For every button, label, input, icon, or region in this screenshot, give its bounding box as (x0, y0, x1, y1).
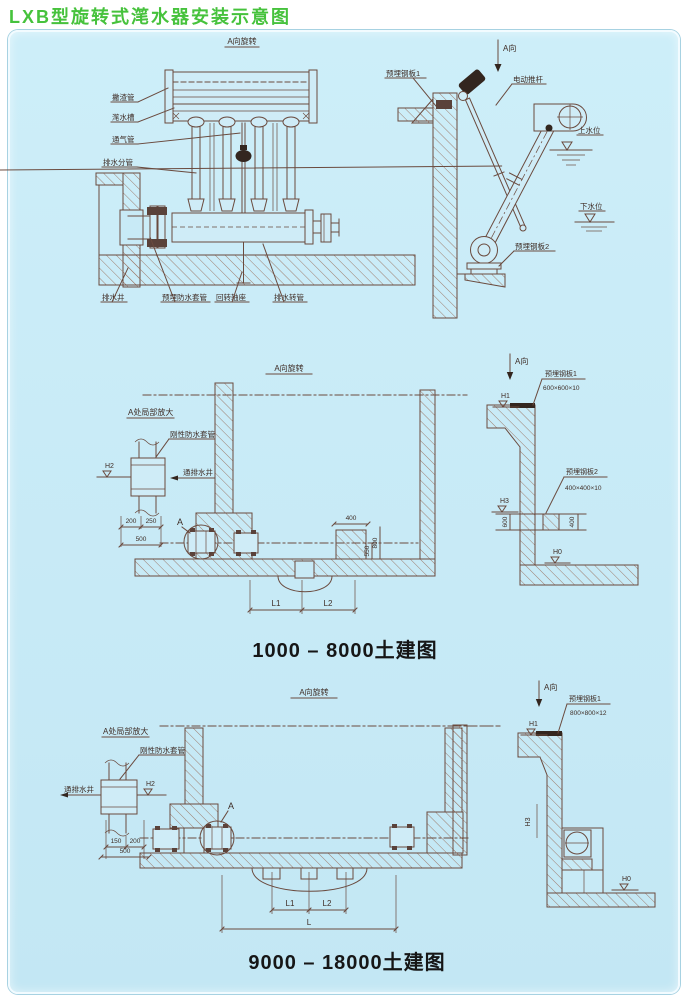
label-decant-trough: 滗水槽 (112, 112, 135, 122)
dim-550: 550 (364, 545, 371, 556)
civil-large-view-label: A向旋转 (299, 687, 328, 697)
label-vent-pipe: 通气管 (112, 134, 135, 144)
label-embedded-waterproof-sleeve: 预埋防水套管 (162, 292, 207, 302)
level-h2-large: H2 (146, 781, 155, 788)
tank-structure (135, 383, 435, 592)
plate1-size-small: 600×600×10 (543, 385, 580, 392)
upper-water-level-label: 上水位 (578, 125, 601, 135)
direction-label-small: A向 (515, 356, 528, 366)
plate1-label-large: 预埋钢板1 (569, 694, 601, 703)
dim-250: 250 (146, 518, 157, 525)
direction-label-large: A向 (544, 682, 557, 692)
dim-600: 600 (502, 516, 509, 527)
level-h0-large: H0 (622, 876, 631, 883)
decanter-pipe (479, 125, 554, 254)
dim-200-large: 200 (130, 838, 141, 845)
drop-pipes (188, 117, 299, 211)
dim-l2-large: L2 (323, 899, 332, 908)
lower-water-level-label: 下水位 (580, 201, 603, 211)
caption-9000-18000: 9000 – 18000土建图 (248, 950, 445, 974)
label-drain-well: 排水井 (102, 292, 125, 302)
detail-title: A处局部放大 (128, 407, 173, 417)
tank-structure-large (140, 728, 463, 891)
right-wall-section: A向 预埋钢板1 600×600×10 H1 预埋钢板2 400×400×10 … (487, 354, 638, 585)
detail-marker-a: A (177, 517, 183, 527)
level-h1-large: H1 (529, 721, 538, 728)
dim-800: 800 (372, 537, 379, 548)
rigid-sleeve-label-large: 刚性防水套管 (140, 745, 185, 755)
level-h0-small: H0 (553, 549, 562, 556)
label-drain-rotating-pipe: 排水转管 (274, 292, 304, 302)
plate1-size-large: 800×800×12 (570, 710, 607, 717)
dim-150: 150 (111, 838, 122, 845)
rigid-sleeve-label: 刚性防水套管 (170, 429, 215, 439)
right-wall-section-large: A向 预埋钢板1 800×800×12 H1 H3 H0 (453, 681, 655, 907)
caption-1000-8000: 1000 – 8000土建图 (252, 638, 437, 662)
plate1-label-small: 预埋钢板1 (545, 369, 577, 378)
l1-l2-dims: L1 L2 (248, 580, 357, 614)
direction-label: A向 (503, 43, 516, 53)
dim-200: 200 (126, 518, 137, 525)
scum-trough (165, 70, 317, 123)
l-dims-large: L1 L2 L (220, 872, 398, 933)
dim-l1: L1 (272, 599, 281, 608)
embedded-plate-1-label: 预埋钢板1 (386, 68, 420, 78)
detail-marker-a-large: A (228, 801, 234, 811)
assembly-view-label: A向旋转 (227, 36, 256, 46)
pipe-pedestal (336, 530, 366, 559)
plate2-size-small: 400×400×10 (565, 485, 602, 492)
level-h3-small: H3 (500, 498, 509, 505)
civil-view-large: A向旋转 A (60, 681, 655, 974)
lower-water-level: 下水位 (575, 201, 614, 231)
level-h1-small: H1 (501, 393, 510, 400)
dim-500-large: 500 (120, 848, 131, 855)
dim-400: 400 (346, 515, 357, 522)
diagram-canvas: A向旋转 (0, 0, 690, 1002)
level-h3-large: H3 (525, 817, 532, 826)
label-rotary-shaft-seat: 回转轴座 (216, 292, 246, 302)
to-drain-well-label-large: 通排水井 (64, 784, 94, 794)
direction-arrow-a: A向 (495, 40, 517, 72)
dim-500: 500 (136, 536, 147, 543)
dim-l1-large: L1 (286, 899, 295, 908)
label-drain-branch-pipe: 排水分管 (103, 157, 133, 167)
civil-view-small: A向旋转 A 400 (97, 354, 638, 662)
label-skim-pipe: 撇渣管 (112, 92, 135, 102)
plate2-label-small: 预埋钢板2 (566, 467, 598, 476)
drain-cylinder (128, 206, 339, 248)
dim-l-large: L (307, 918, 312, 927)
level-h2: H2 (105, 463, 114, 470)
push-rod (466, 98, 526, 229)
actuator-label: 电动推杆 (513, 74, 543, 84)
embedded-plate-2-label: 预埋钢板2 (515, 241, 549, 251)
dim-400b: 400 (569, 516, 576, 527)
detail-title-large: A处局部放大 (103, 726, 148, 736)
pivot-bearing (457, 237, 505, 288)
dim-l2: L2 (324, 599, 333, 608)
civil-small-view-label: A向旋转 (274, 363, 303, 373)
to-drain-well-label: 通排水井 (183, 467, 213, 477)
